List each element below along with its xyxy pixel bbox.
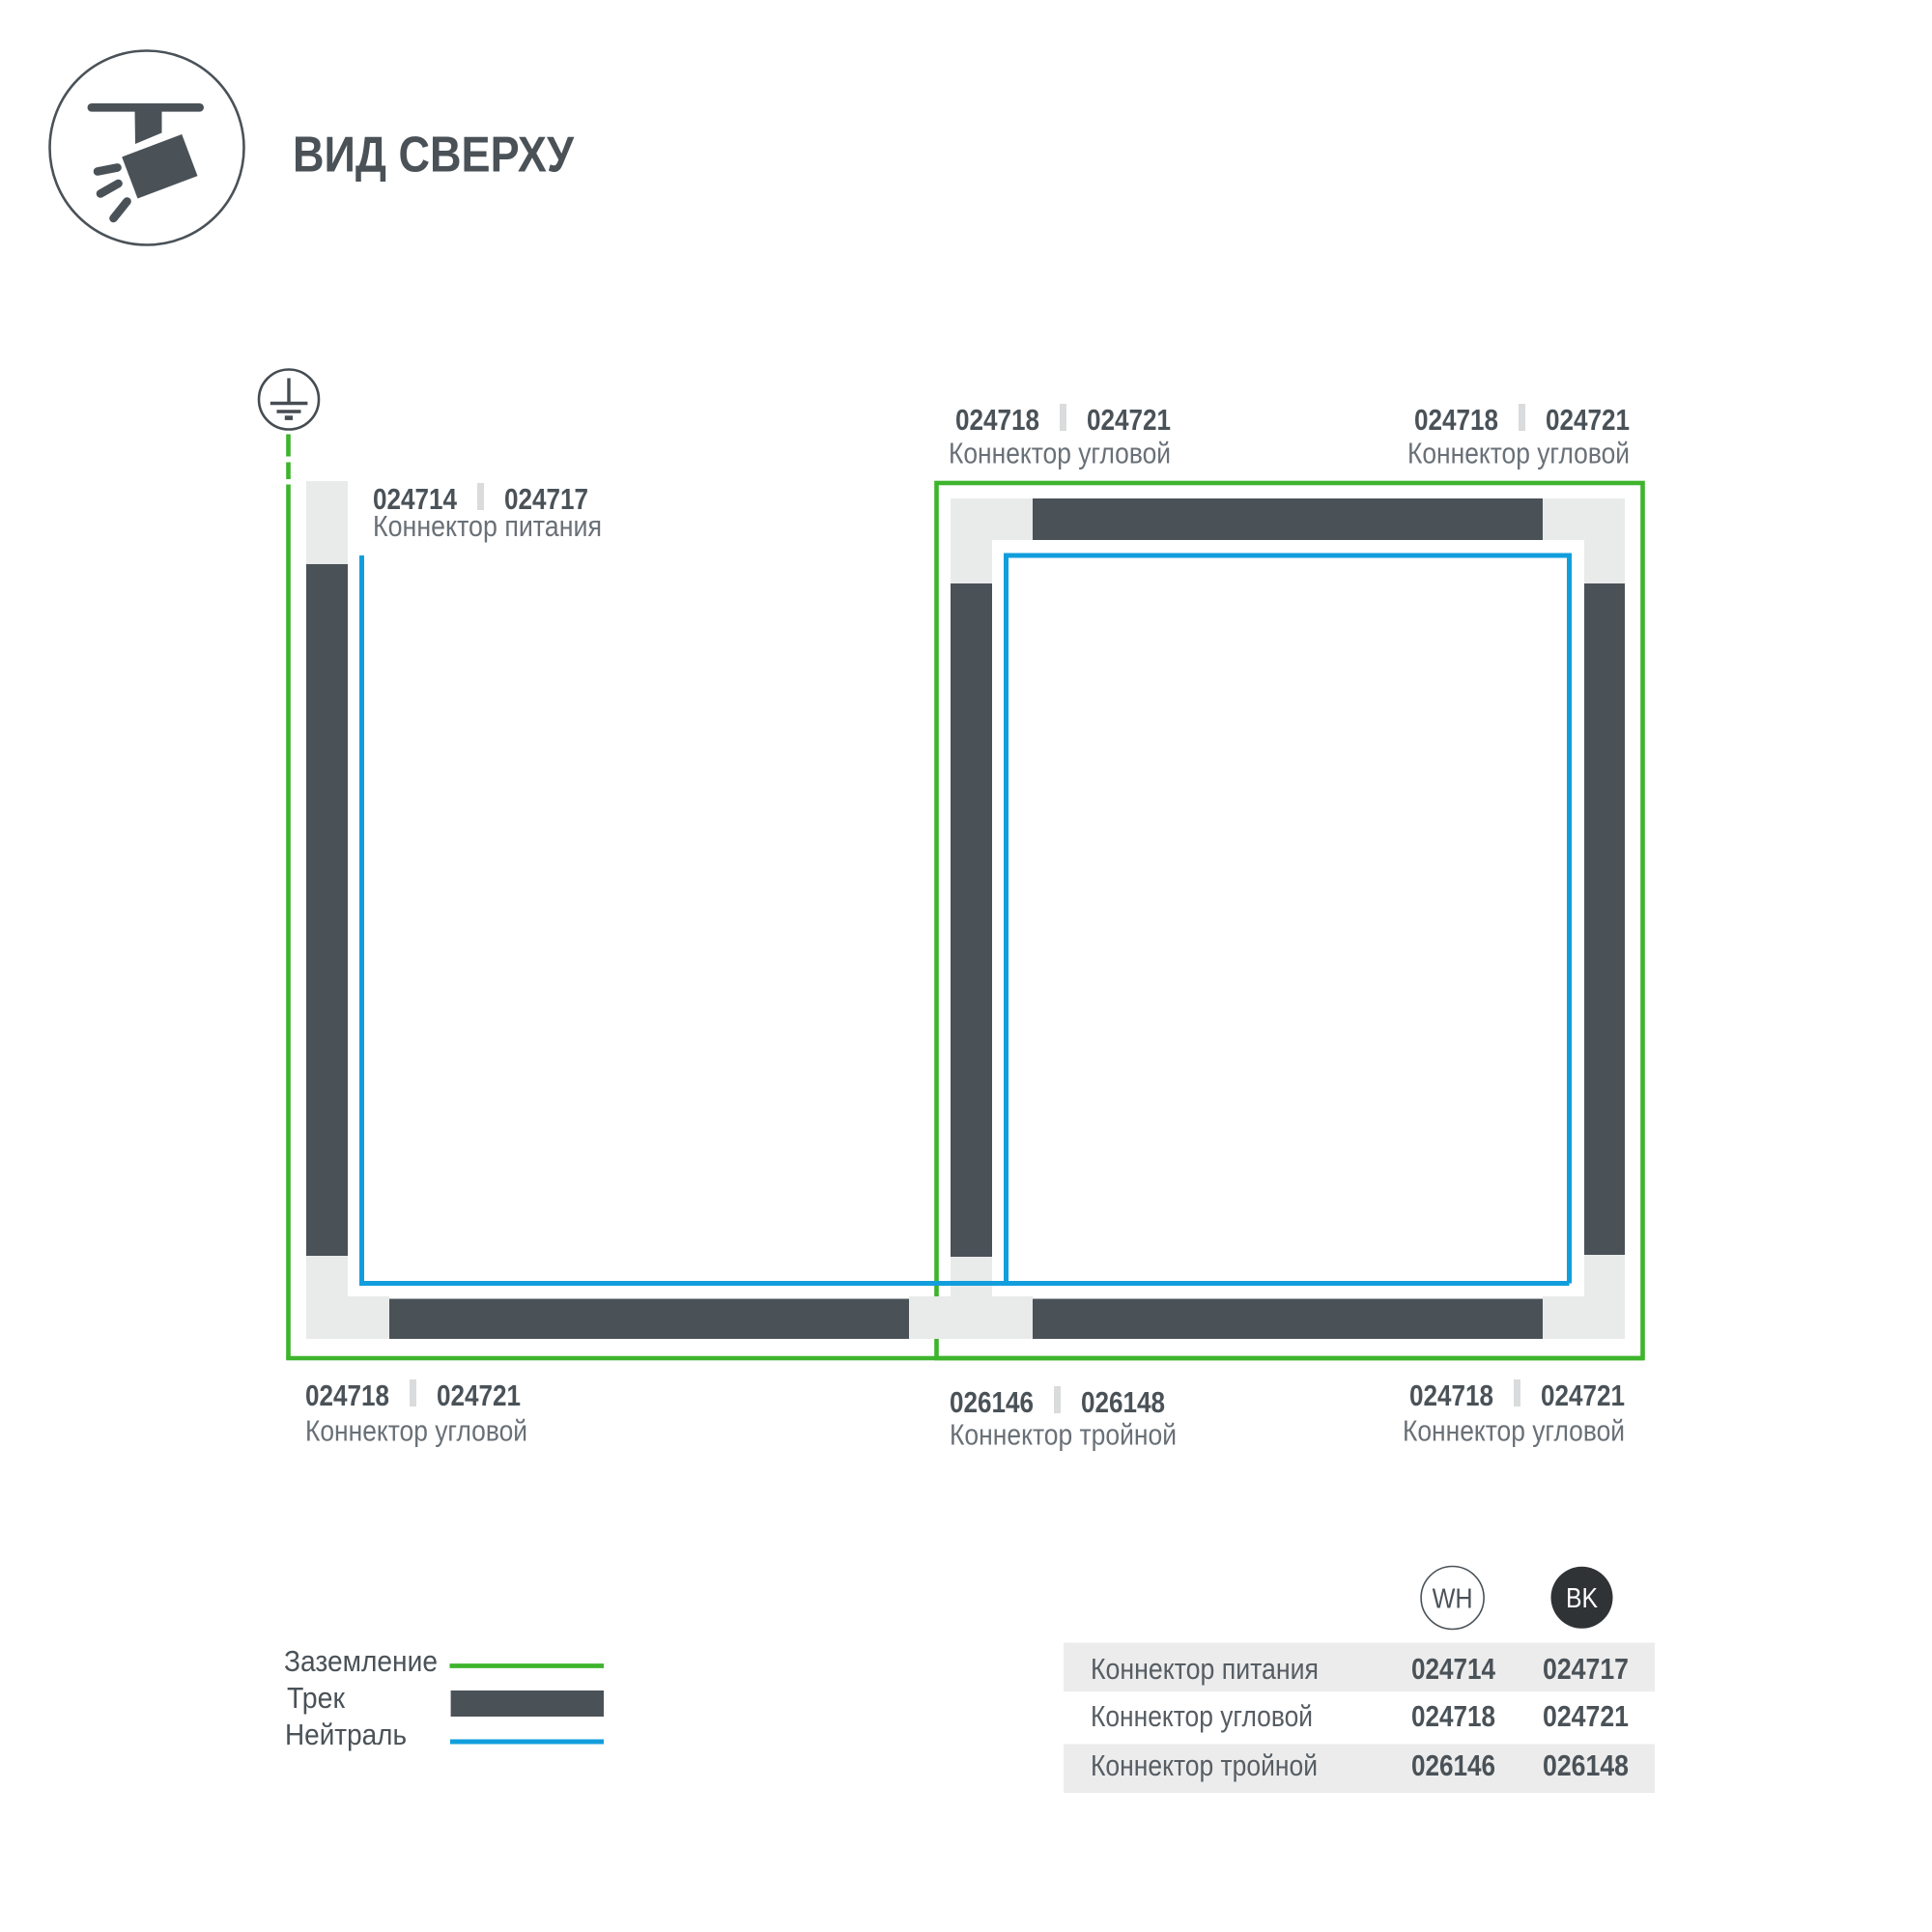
svg-text:024718: 024718 bbox=[1409, 1378, 1493, 1412]
svg-text:Коннектор тройной: Коннектор тройной bbox=[1091, 1748, 1318, 1782]
svg-text:Коннектор угловой: Коннектор угловой bbox=[305, 1414, 527, 1448]
svg-text:024721: 024721 bbox=[1546, 403, 1630, 437]
svg-text:Трек: Трек bbox=[287, 1681, 345, 1715]
svg-text:026146: 026146 bbox=[950, 1385, 1034, 1419]
svg-text:Коннектор тройной: Коннектор тройной bbox=[950, 1418, 1177, 1452]
svg-text:Коннектор угловой: Коннектор угловой bbox=[1403, 1414, 1625, 1448]
svg-text:024721: 024721 bbox=[437, 1378, 521, 1412]
svg-text:Нейтраль: Нейтраль bbox=[285, 1718, 407, 1751]
svg-text:Коннектор угловой: Коннектор угловой bbox=[1091, 1699, 1313, 1733]
svg-text:024721: 024721 bbox=[1541, 1378, 1625, 1412]
svg-text:Коннектор питания: Коннектор питания bbox=[1091, 1652, 1319, 1686]
svg-text:024717: 024717 bbox=[1543, 1652, 1629, 1686]
svg-text:Заземление: Заземление bbox=[284, 1644, 438, 1678]
svg-text:Коннектор угловой: Коннектор угловой bbox=[949, 437, 1171, 470]
svg-text:026148: 026148 bbox=[1543, 1748, 1629, 1782]
svg-text:024718: 024718 bbox=[305, 1378, 389, 1412]
svg-text:026148: 026148 bbox=[1081, 1385, 1165, 1419]
svg-text:Коннектор угловой: Коннектор угловой bbox=[1407, 437, 1630, 470]
svg-text:ВИД СВЕРХУ: ВИД СВЕРХУ bbox=[293, 128, 575, 184]
svg-text:024718: 024718 bbox=[955, 403, 1039, 437]
svg-text:024721: 024721 bbox=[1543, 1699, 1629, 1733]
svg-text:WH: WH bbox=[1433, 1584, 1473, 1615]
svg-text:026146: 026146 bbox=[1411, 1748, 1495, 1782]
svg-text:Коннектор питания: Коннектор питания bbox=[373, 509, 602, 543]
svg-text:BK: BK bbox=[1566, 1583, 1599, 1614]
svg-text:024721: 024721 bbox=[1087, 403, 1171, 437]
svg-text:024718: 024718 bbox=[1414, 403, 1498, 437]
svg-text:024714: 024714 bbox=[1411, 1652, 1496, 1686]
svg-text:024718: 024718 bbox=[1411, 1699, 1495, 1733]
